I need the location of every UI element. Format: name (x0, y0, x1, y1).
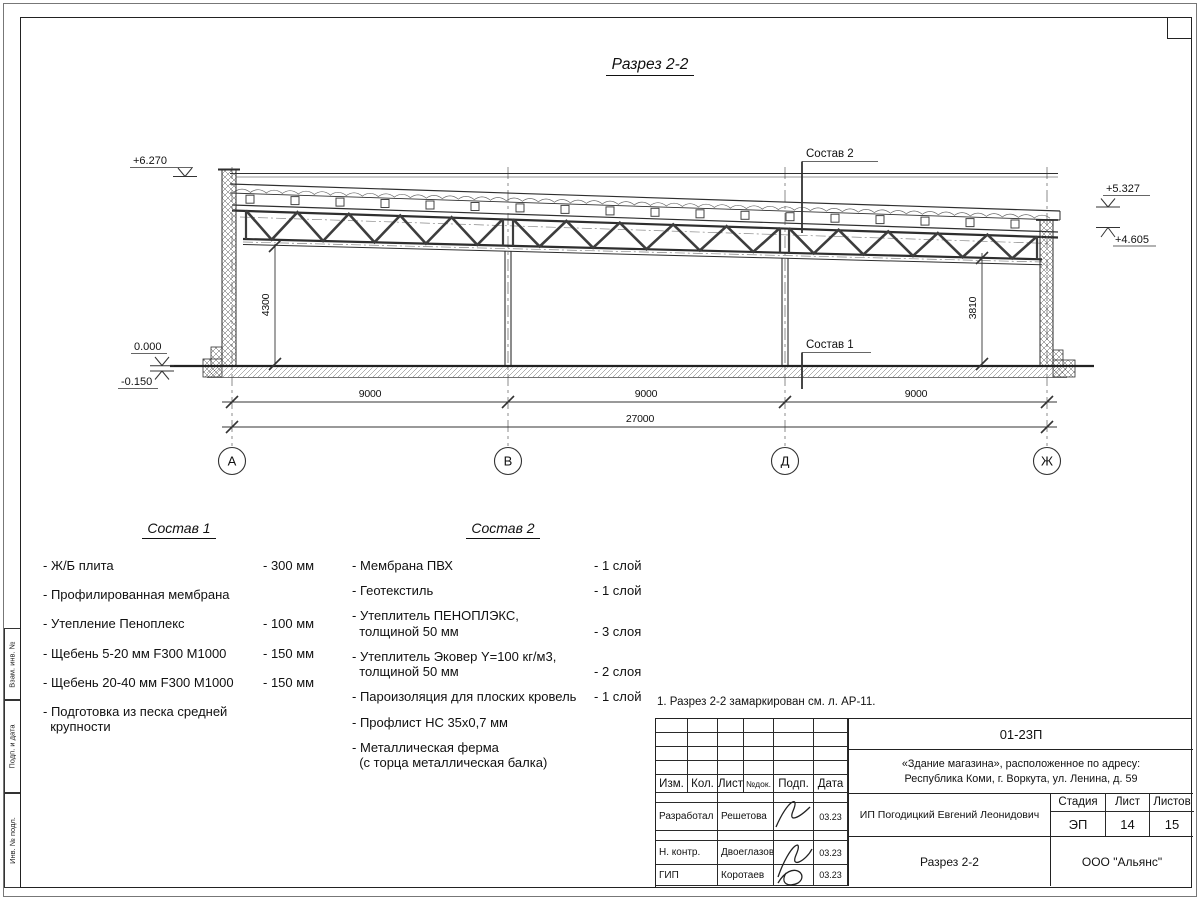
axis-label-a: А (228, 454, 237, 469)
layer-count: - 2 слоя (594, 664, 654, 679)
layer-item: - Пароизоляция для плоских кровель- 1 сл… (352, 689, 654, 704)
axis-label-d: Д (781, 454, 790, 469)
col-kol: Кол. (688, 775, 718, 793)
elevation-ground: -0.150 (118, 371, 174, 389)
leader-sostav-2: Состав 2 (806, 148, 854, 160)
floor-slab (170, 366, 1094, 378)
layer-item: - Профлист НС 35х0,7 мм (352, 715, 654, 730)
layer-item: - Утеплитель ПЕНОПЛЭКС, толщиной 50 мм- … (352, 608, 654, 639)
side-stamp-inv: Инв. № подл. (4, 793, 20, 888)
layer-thickness: - 300 мм (263, 558, 315, 573)
layer-item: - Профилированная мембрана (43, 587, 315, 602)
layer-leaders: Состав 2 Состав 1 (802, 148, 878, 389)
elevation-parapet-left: +6.270 (130, 155, 197, 177)
title-block-right: 01-23П «Здание магазина», расположенное … (848, 719, 1193, 886)
row-role: ГИП (656, 865, 718, 886)
layer-count: - 1 слой (594, 689, 654, 704)
svg-text:+6.270: +6.270 (133, 155, 167, 167)
object-name: «Здание магазина», расположенное по адре… (849, 749, 1193, 793)
row-date: 03.23 (814, 803, 848, 831)
layer-name: - Утеплитель Эковер Y=100 кг/м3, толщино… (352, 649, 594, 680)
col-izm: Изм. (656, 775, 688, 793)
layer-item: - Ж/Б плита- 300 мм (43, 558, 315, 573)
layer-name: - Щебень 20-40 мм F300 М1000 (43, 675, 263, 690)
layer-item: - Щебень 5-20 мм F300 М1000- 150 мм (43, 646, 315, 661)
sostav-2-heading: Состав 2 (352, 520, 654, 537)
col-data: Дата (814, 775, 848, 793)
layer-thickness: - 100 мм (263, 616, 315, 631)
layer-item: - Геотекстиль- 1 слой (352, 583, 654, 598)
height-dim-left: 4300 (260, 293, 272, 316)
doc-number: 01-23П (849, 719, 1193, 749)
layer-name: - Геотекстиль (352, 583, 594, 598)
axis-bubbles: А В Д Ж (219, 448, 1061, 475)
layer-item: - Металлическая ферма (с торца металличе… (352, 740, 654, 771)
sheet-note: 1. Разрез 2-2 замаркирован см. л. АР-11. (657, 696, 875, 708)
span-dim-3: 9000 (905, 388, 928, 400)
dimension-lines (222, 240, 1057, 433)
sheet-label: Лист (1105, 793, 1149, 812)
svg-text:-0.150: -0.150 (121, 376, 152, 388)
layer-name: - Профлист НС 35х0,7 мм (352, 715, 594, 730)
sostav-1-heading: Состав 1 (43, 520, 315, 537)
layer-name: - Профилированная мембрана (43, 587, 263, 602)
walls-and-columns (203, 170, 1075, 378)
svg-text:0.000: 0.000 (134, 341, 162, 353)
layer-name: - Металлическая ферма (с торца металличе… (352, 740, 594, 771)
stage-value: ЭП (1051, 812, 1105, 836)
layer-item: - Мембрана ПВХ- 1 слой (352, 558, 654, 573)
row-date: 03.23 (814, 865, 848, 886)
company-name: ООО "Альянс" (1050, 836, 1193, 886)
col-list: Лист (718, 775, 744, 793)
leader-sostav-1: Состав 1 (806, 339, 854, 351)
sheet-number: 14 (1105, 812, 1149, 836)
sostav-2-list: Состав 2 - Мембрана ПВХ- 1 слой - Геотек… (352, 520, 654, 781)
title-block-signature-area: Изм. Кол. Лист №док. Подп. Дата Разработ… (656, 719, 848, 886)
layer-count: - 3 слоя (594, 624, 654, 639)
layer-name: - Щебень 5-20 мм F300 М1000 (43, 646, 263, 661)
layer-item: - Щебень 20-40 мм F300 М1000- 150 мм (43, 675, 315, 690)
stage-label: Стадия (1051, 793, 1105, 812)
dimension-labels: 9000 9000 9000 27000 4300 3810 (260, 293, 979, 425)
sheets-label: Листов (1149, 793, 1194, 812)
row-date: 03.23 (814, 841, 848, 865)
elevation-roof-right-bottom: +4.605 (1096, 228, 1156, 247)
row-name: Двоеглазов (718, 841, 774, 865)
row-name: Решетова (718, 803, 774, 831)
title-block: Изм. Кол. Лист №док. Подп. Дата Разработ… (655, 718, 1192, 888)
layer-thickness: - 150 мм (263, 675, 315, 690)
svg-text:+5.327: +5.327 (1106, 183, 1140, 195)
row-role: Разработал (656, 803, 718, 831)
col-ndok: №док. (744, 775, 774, 793)
signature-cell (774, 865, 814, 886)
layer-name: - Подготовка из песка средней крупности (43, 704, 263, 735)
layer-name: - Ж/Б плита (43, 558, 263, 573)
axis-label-zh: Ж (1041, 454, 1053, 469)
layer-name: - Утеплитель ПЕНОПЛЭКС, толщиной 50 мм (352, 608, 594, 639)
client-name: ИП Погодицкий Евгений Леонидович (849, 793, 1050, 836)
row-name: Коротаев (718, 865, 774, 886)
stage-sheet-grid: Стадия Лист Листов ЭП 14 15 (1050, 793, 1194, 836)
layer-count: - 1 слой (594, 558, 654, 573)
side-stamp-podp: Подп. и дата (4, 700, 20, 793)
col-podp: Подп. (774, 775, 814, 793)
drawing-sheet: Разрез 2-2 (0, 0, 1200, 900)
layer-thickness: - 150 мм (263, 646, 315, 661)
sheets-total: 15 (1149, 812, 1194, 836)
layer-count: - 1 слой (594, 583, 654, 598)
layer-item: - Утеплитель Эковер Y=100 кг/м3, толщино… (352, 649, 654, 680)
row-role: Н. контр. (656, 841, 718, 865)
span-dim-2: 9000 (635, 388, 658, 400)
svg-text:+4.605: +4.605 (1115, 234, 1149, 246)
signature-cell (774, 841, 814, 865)
layer-item: - Подготовка из песка средней крупности (43, 704, 315, 735)
layer-name: - Пароизоляция для плоских кровель (352, 689, 594, 704)
elevation-roof-right-top: +5.327 (1096, 183, 1150, 207)
elevation-floor: 0.000 (131, 341, 174, 366)
span-dim-1: 9000 (359, 388, 382, 400)
layer-name: - Мембрана ПВХ (352, 558, 594, 573)
axis-label-b: В (504, 454, 513, 469)
layer-name: - Утепление Пеноплекс (43, 616, 263, 631)
sostav-1-list: Состав 1 - Ж/Б плита- 300 мм - Профилиро… (43, 520, 315, 749)
drawing-name: Разрез 2-2 (849, 836, 1050, 886)
signature-cell (774, 803, 814, 831)
total-dim: 27000 (626, 413, 655, 425)
height-dim-right: 3810 (967, 296, 979, 319)
layer-item: - Утепление Пеноплекс- 100 мм (43, 616, 315, 631)
side-stamp-vzam: Взам. инв. № (4, 628, 20, 700)
